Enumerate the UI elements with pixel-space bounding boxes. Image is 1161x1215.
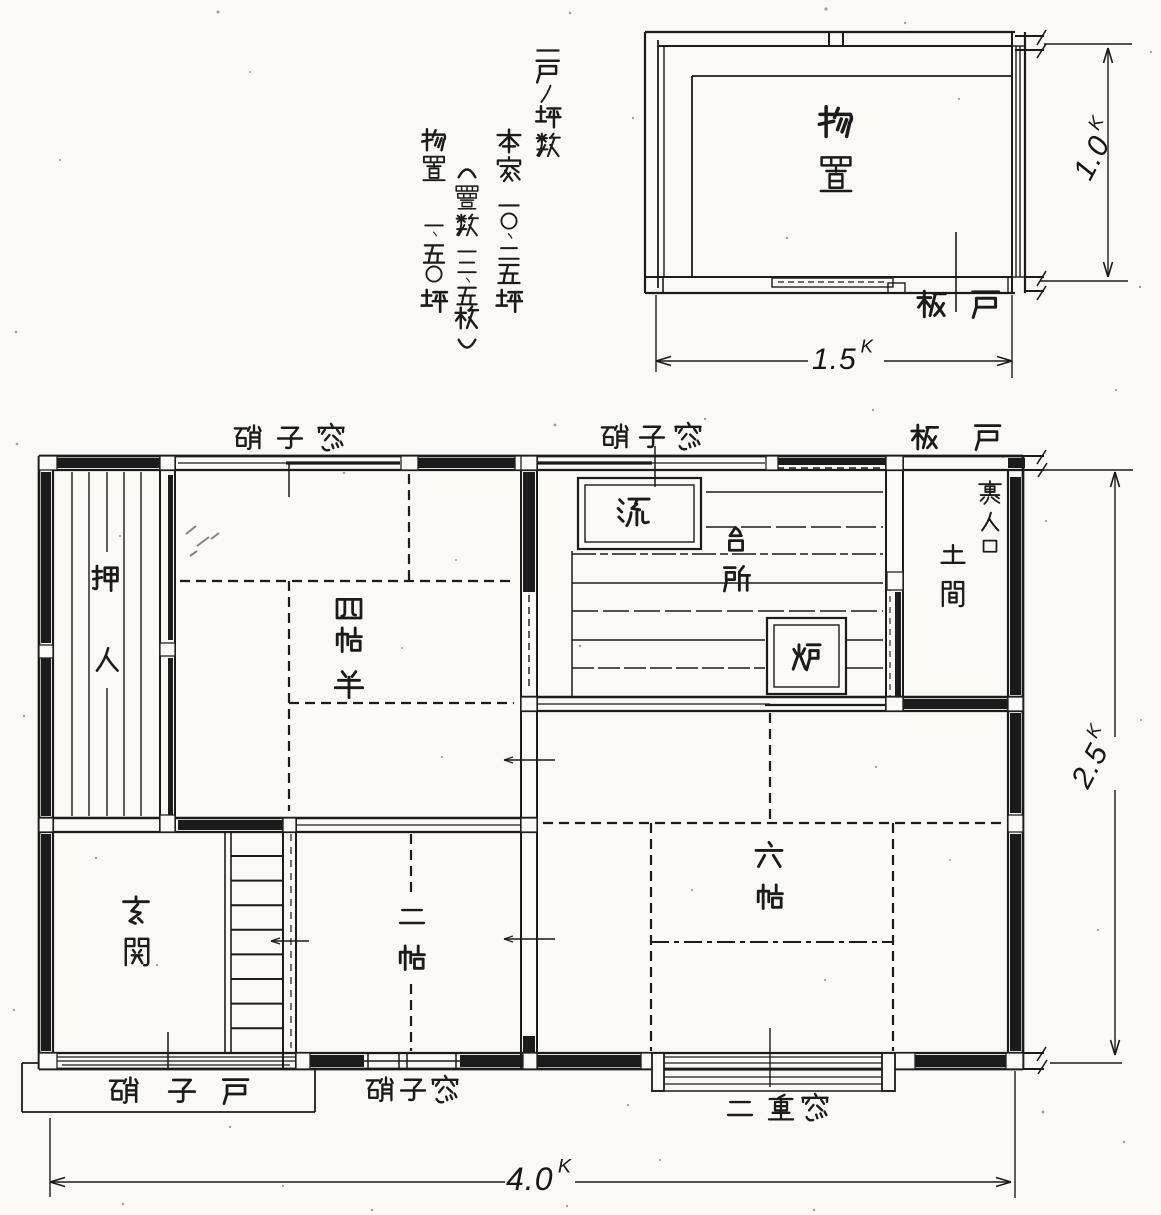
svg-text:K: K (558, 1155, 572, 1177)
svg-text:K: K (861, 336, 875, 357)
svg-text:1.5: 1.5 (812, 343, 857, 376)
svg-text:4.0: 4.0 (506, 1161, 553, 1197)
